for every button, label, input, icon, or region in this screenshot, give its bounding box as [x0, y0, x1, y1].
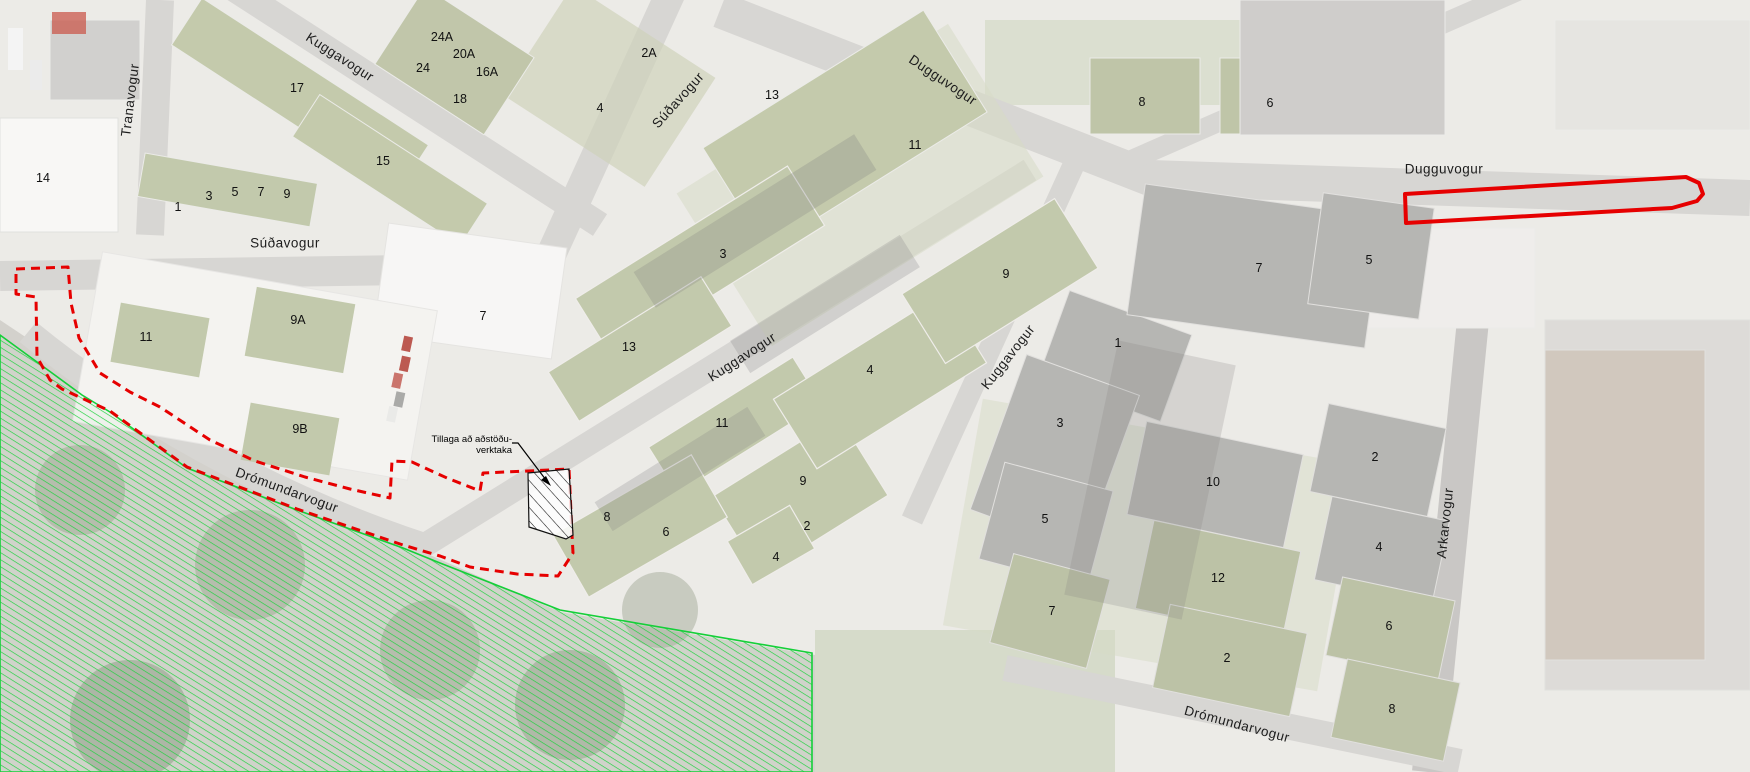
aerial-site-plan: Tillaga að aðstöðu- verktaka TranavogurK…	[0, 0, 1750, 772]
contractor-hatch-area	[528, 469, 573, 539]
map-graphics	[0, 0, 1750, 772]
